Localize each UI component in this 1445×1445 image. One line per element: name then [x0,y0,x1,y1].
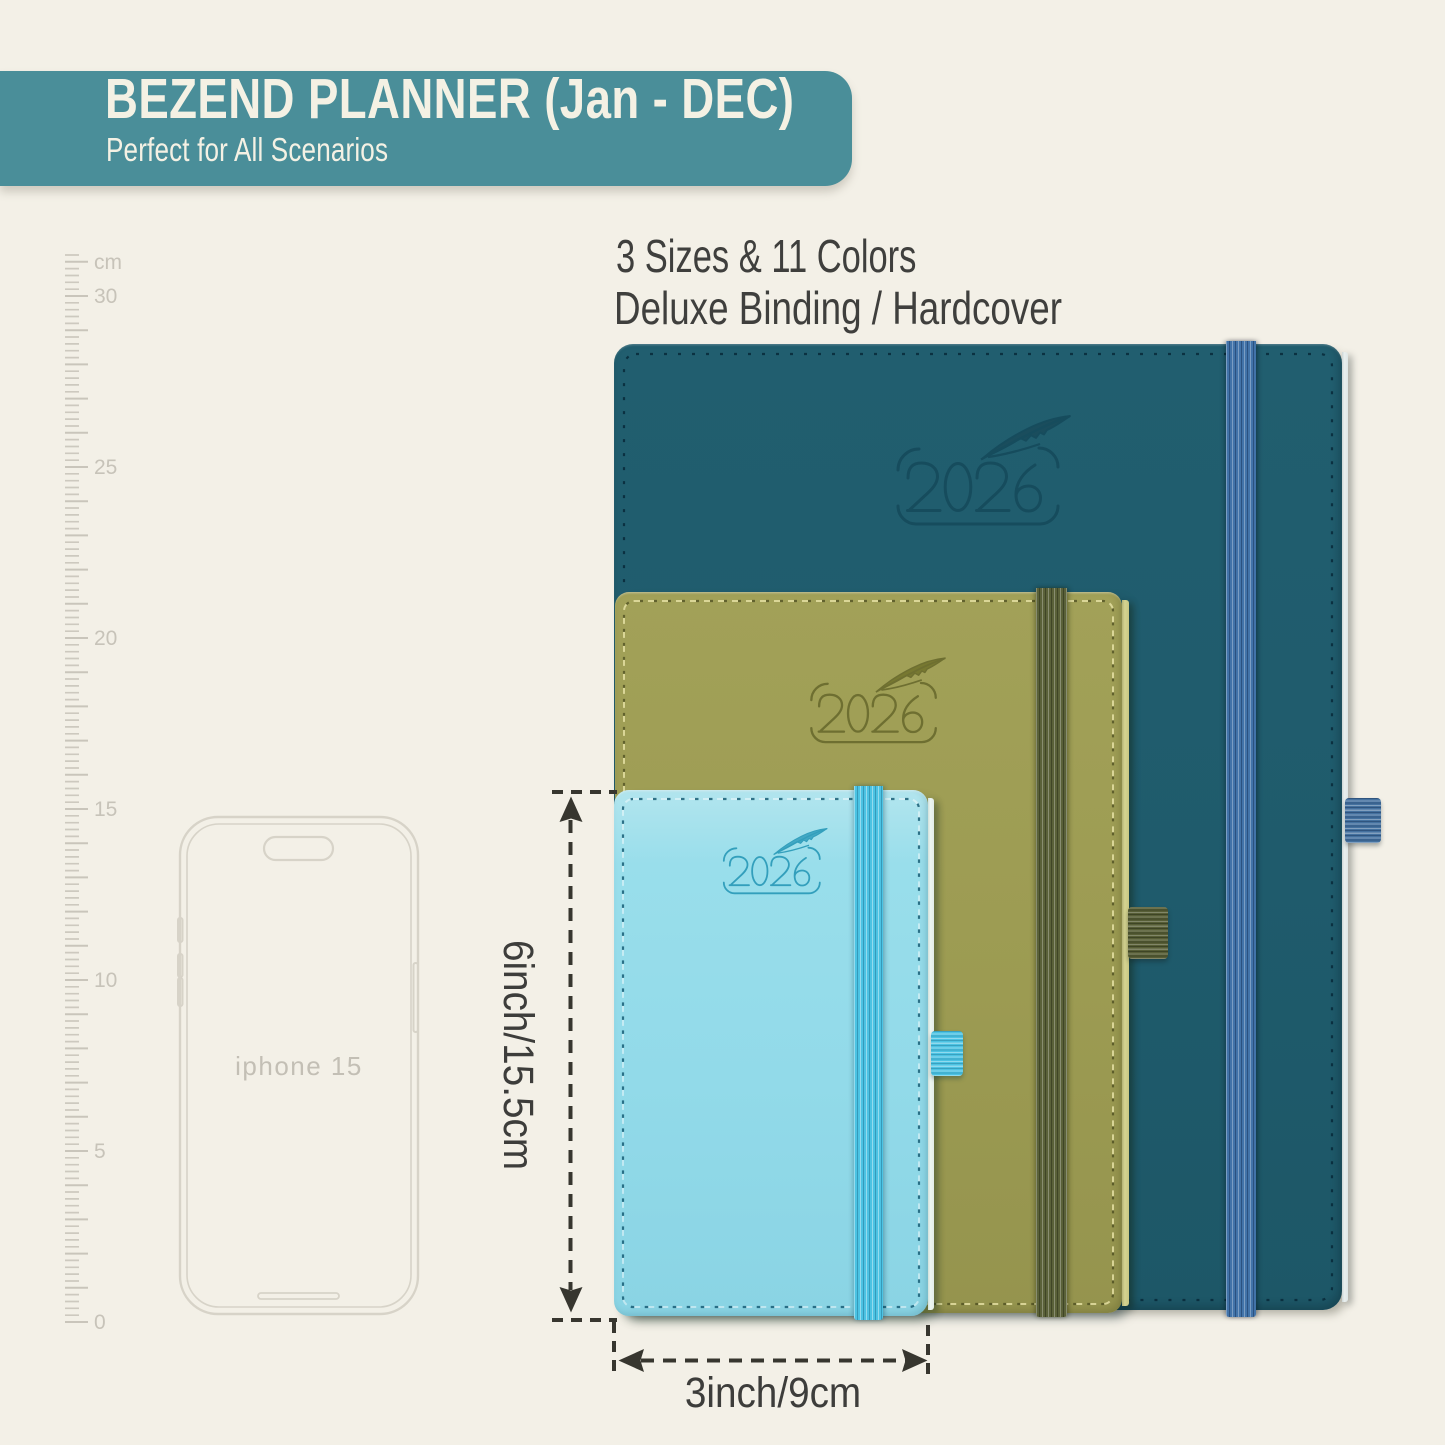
svg-text:6inch/15.5cm: 6inch/15.5cm [495,940,543,1170]
svg-text:3inch/9cm: 3inch/9cm [685,1368,861,1416]
